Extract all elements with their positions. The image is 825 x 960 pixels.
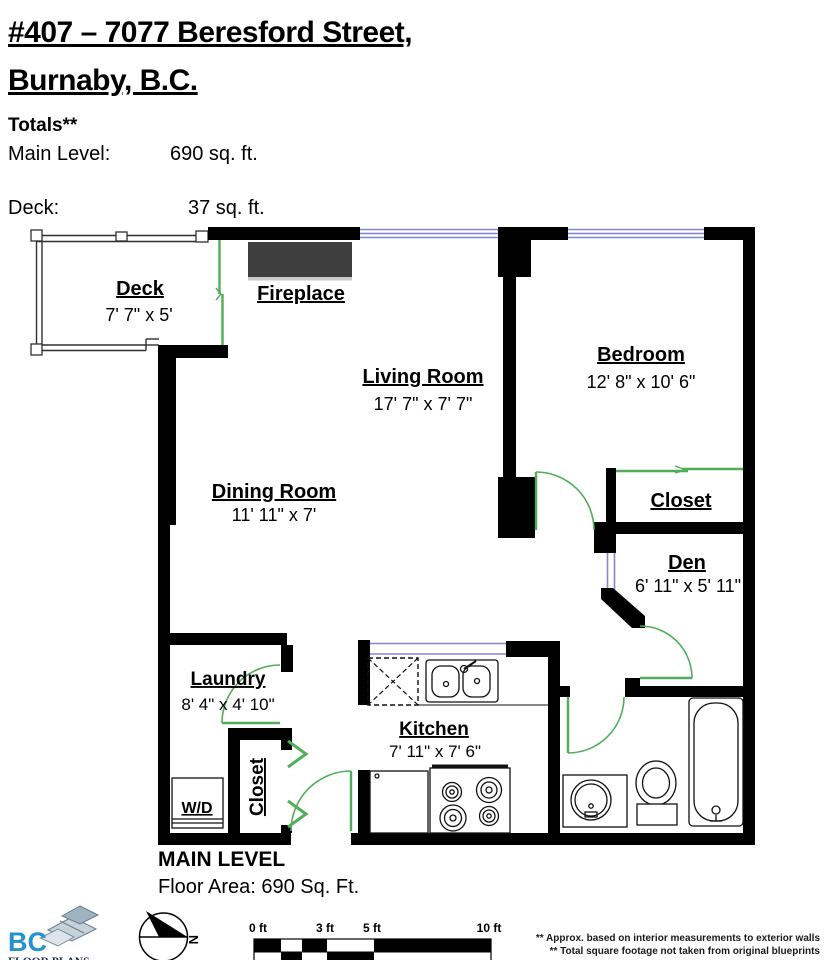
dining-room-dims: 11' 11" x 7'	[232, 505, 317, 525]
den-door	[640, 626, 692, 678]
main-level-title: MAIN LEVEL	[158, 848, 285, 871]
logo-bc-text: BC	[8, 927, 47, 957]
floor-plan-page: #407 – 7077 Beresford Street, Burnaby, B…	[0, 0, 825, 960]
kitchen-sink-icon	[426, 660, 498, 702]
header: #407 – 7077 Beresford Street, Burnaby, B…	[8, 16, 412, 219]
bedroom-closet-label: Closet	[650, 490, 711, 512]
den-dims: 6' 11" x 5' 11"	[635, 576, 741, 596]
scale-bar: 0 ft 3 ft 5 ft 10 ft	[249, 921, 501, 960]
deck-post	[31, 230, 42, 241]
scale-label-3: 3 ft	[316, 921, 334, 935]
floor-area-text: Floor Area: 690 Sq. Ft.	[158, 876, 359, 898]
bathtub-icon	[689, 698, 743, 826]
bathroom-door	[568, 697, 624, 753]
hall-closet-label: Closet	[247, 757, 268, 816]
deck-post	[196, 231, 208, 242]
scale-label-10: 10 ft	[477, 921, 502, 935]
kitchen-label: Kitchen	[399, 719, 469, 740]
bathroom-fixtures	[563, 698, 743, 827]
bedroom-closet-sliding-door	[616, 466, 743, 473]
totals-label: Totals**	[8, 115, 78, 136]
disclaimer-line1: ** Approx. based on interior measurement…	[536, 933, 821, 944]
kitchen-counter	[370, 771, 428, 833]
den-label: Den	[668, 552, 706, 574]
deck-dims: 7' 7" x 5'	[105, 305, 172, 325]
bedroom-window	[568, 227, 704, 240]
logo-floorplans-text: FLOOR PLANS	[8, 956, 89, 960]
floor-plan-canvas: #407 – 7077 Beresford Street, Burnaby, B…	[0, 0, 825, 960]
main-level-value: 690 sq. ft.	[170, 143, 258, 165]
refrigerator-icon	[368, 658, 418, 705]
fireplace	[248, 242, 352, 281]
washer-dryer-label: W/D	[181, 800, 212, 817]
deck-label: Deck	[116, 278, 165, 300]
hall-closet-bifold-doors	[288, 741, 306, 827]
deck-post	[116, 232, 127, 241]
room-labels: Deck 7' 7" x 5' Fireplace Living Room 17…	[105, 278, 741, 817]
kitchen-window	[370, 641, 506, 657]
toilet-icon	[636, 761, 677, 825]
scale-label-5: 5 ft	[363, 921, 381, 935]
living-room-dims: 17' 7" x 7' 7"	[374, 394, 473, 414]
living-room-label: Living Room	[362, 366, 483, 388]
page-title-line2: Burnaby, B.C.	[8, 64, 198, 97]
deck-area-value: 37 sq. ft.	[188, 197, 265, 219]
stove-icon	[430, 766, 510, 833]
disclaimer: ** Approx. based on interior measurement…	[536, 933, 821, 957]
bc-floor-plans-logo: BC FLOOR PLANS	[8, 906, 98, 960]
laundry-dims: 8' 4" x 4' 10"	[181, 695, 274, 714]
deck-sliding-door	[216, 240, 223, 345]
kitchen-dims: 7' 11" x 7' 6"	[389, 742, 481, 761]
living-room-window	[360, 227, 498, 240]
scale-label-0: 0 ft	[249, 921, 267, 935]
bedroom-door	[536, 472, 594, 530]
dining-room-label: Dining Room	[212, 481, 336, 503]
compass: N	[140, 911, 202, 960]
page-title-line1: #407 – 7077 Beresford Street,	[8, 16, 412, 49]
deck-post	[31, 344, 42, 355]
main-level-label: Main Level:	[8, 143, 110, 165]
entry-door	[291, 771, 351, 831]
deck-area-label: Deck:	[8, 197, 59, 219]
laundry-label: Laundry	[191, 669, 266, 690]
den-interior-window	[605, 553, 617, 590]
footer: MAIN LEVEL Floor Area: 690 Sq. Ft. BC FL…	[8, 848, 820, 960]
bathroom-sink-icon	[563, 775, 627, 827]
disclaimer-line2: ** Total square footage not taken from o…	[550, 946, 821, 957]
bedroom-label: Bedroom	[597, 344, 685, 366]
bedroom-dims: 12' 8" x 10' 6"	[587, 372, 696, 392]
compass-north-label: N	[186, 935, 201, 944]
fireplace-label: Fireplace	[257, 283, 345, 305]
